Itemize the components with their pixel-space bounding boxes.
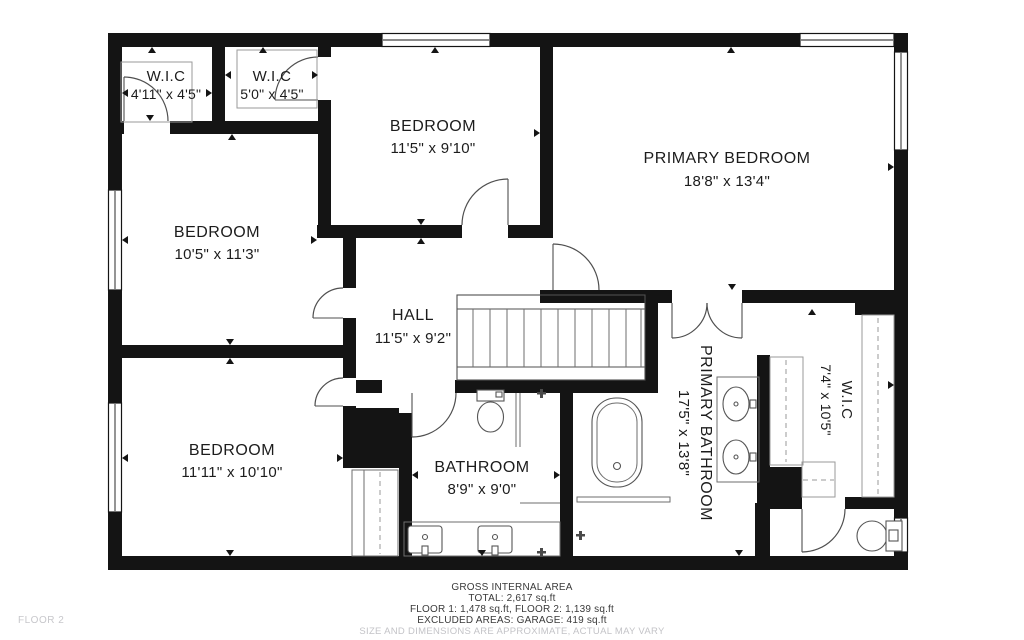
shower-halfwall-primary: [577, 497, 670, 502]
room-label-primary-bedroom: PRIMARY BEDROOM: [644, 150, 811, 167]
room-label-primary-bathroom: PRIMARY BATHROOM: [697, 345, 714, 521]
staircase: [457, 295, 645, 380]
window-left-bedroom-bottom: [109, 403, 122, 512]
room-dims-bedroom-top: 11'5" x 9'10": [390, 140, 475, 157]
gross-internal-area-title: GROSS INTERNAL AREA: [451, 582, 572, 593]
room-label-wic2: W.I.C: [253, 68, 292, 85]
room-dims-primary-bedroom: 18'8" x 13'4": [684, 173, 770, 190]
shower-glass-bathroom: [516, 393, 560, 503]
floor-plan-drawing: W.I.C 4'11" x 4'5" W.I.C 5'0" x 4'5" BED…: [0, 0, 1024, 640]
room-dims-bathroom: 8'9" x 9'0": [448, 481, 517, 498]
area-summary: GROSS INTERNAL AREA TOTAL: 2,617 sq.ft F…: [359, 582, 665, 637]
room-label-hall: HALL: [392, 307, 434, 324]
room-dims-bedroom-left: 10'5" x 11'3": [174, 246, 259, 263]
floor-label: FLOOR 2: [18, 615, 64, 626]
closet-bedroom-bottom: [352, 470, 398, 556]
toilet-wc: [857, 521, 902, 551]
door-bedroom-left: [313, 288, 343, 318]
double-door-primary-bathroom: [672, 303, 742, 338]
floor-plan-page: W.I.C 4'11" x 4'5" W.I.C 5'0" x 4'5" BED…: [0, 0, 1024, 640]
door-primary-bedroom: [553, 244, 599, 290]
room-dims-wic-right: 7'4" x 10'5": [818, 364, 834, 435]
window-left-bedroom-mid: [109, 190, 122, 290]
bathtub-primary: [592, 398, 642, 487]
room-dims-wic1: 4'11" x 4'5": [131, 86, 201, 102]
door-bathroom: [412, 393, 456, 437]
vanity-primary: [717, 377, 759, 482]
excluded-areas: EXCLUDED AREAS: GARAGE: 419 sq.ft: [417, 615, 606, 626]
door-toilet-room: [802, 509, 845, 552]
door-bedroom-bottom: [315, 378, 343, 406]
total-area: TOTAL: 2,617 sq.ft: [468, 593, 555, 604]
disclaimer: SIZE AND DIMENSIONS ARE APPROXIMATE, ACT…: [359, 626, 665, 637]
room-label-bathroom: BATHROOM: [434, 459, 529, 476]
door-bedroom-top: [462, 179, 508, 225]
room-dims-bedroom-bottom: 11'11" x 10'10": [181, 464, 282, 481]
floor-areas: FLOOR 1: 1,478 sq.ft, FLOOR 2: 1,139 sq.…: [410, 604, 614, 615]
toilet-bathroom: [477, 390, 504, 432]
room-dims-wic2: 5'0" x 4'5": [240, 86, 303, 102]
room-label-bedroom-bottom: BEDROOM: [189, 442, 275, 459]
window-top-bedroom: [382, 34, 490, 47]
room-label-bedroom-top: BEDROOM: [390, 118, 476, 135]
room-label-wic1: W.I.C: [147, 68, 186, 85]
room-label-wic-right: W.I.C: [838, 381, 855, 420]
room-dims-primary-bathroom: 17'5" x 13'8": [675, 390, 692, 476]
window-top-primary: [800, 34, 894, 47]
room-dims-hall: 11'5" x 9'2": [375, 330, 451, 347]
room-label-bedroom-left: BEDROOM: [174, 224, 260, 241]
window-right-primary: [895, 52, 908, 150]
